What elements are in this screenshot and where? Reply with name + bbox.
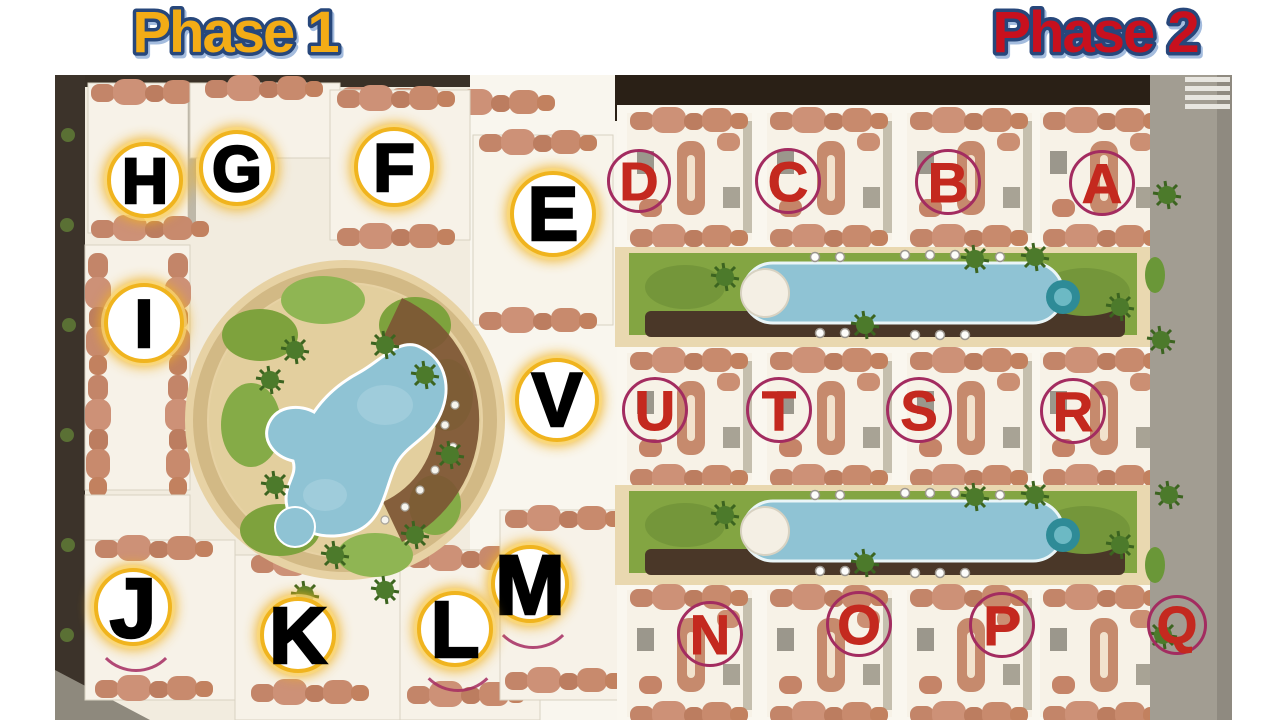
phase1-title: Phase 1 [132, 0, 338, 65]
kids-pool [275, 507, 315, 547]
phase2-area [615, 75, 1165, 720]
site-plan-svg [55, 75, 1232, 720]
left-perimeter-strip [55, 75, 85, 720]
site-plan-aerial-image [55, 75, 1232, 720]
phase2-title-block: Phase 2 [930, 0, 1260, 72]
phase1-title-block: Phase 1 [70, 0, 400, 72]
phase2-title: Phase 2 [992, 0, 1197, 65]
phase2-pool-strip-1 [615, 243, 1150, 347]
right-street [1145, 75, 1232, 720]
phase2-pool-strip-2 [615, 481, 1150, 585]
